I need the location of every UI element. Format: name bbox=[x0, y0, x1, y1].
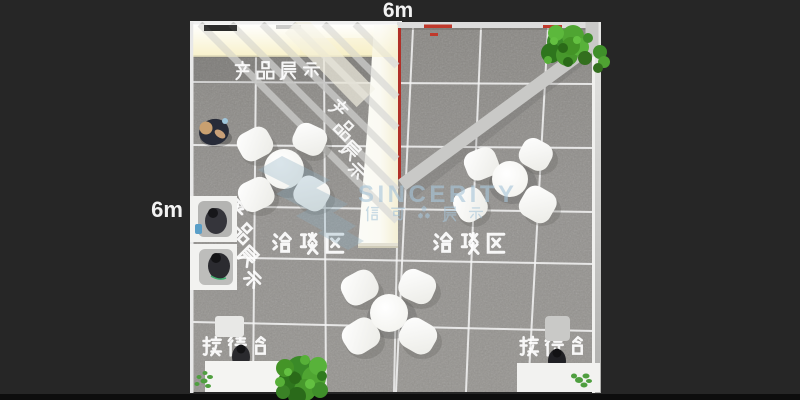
svg-text:SINCERITY: SINCERITY bbox=[358, 181, 518, 208]
svg-text:6m: 6m bbox=[383, 0, 413, 22]
svg-text:6m: 6m bbox=[151, 197, 183, 222]
